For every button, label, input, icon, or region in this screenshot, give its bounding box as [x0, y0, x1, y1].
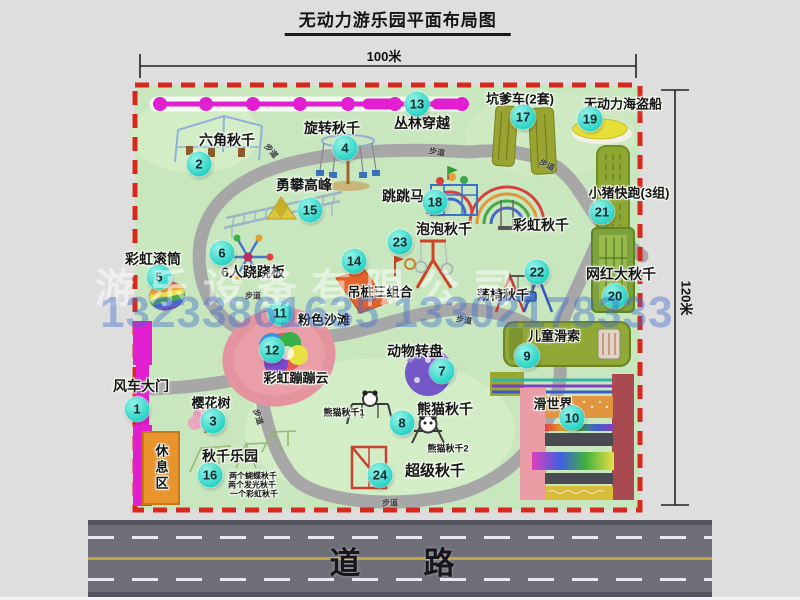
- map-sublabel-6: 休息区: [152, 444, 171, 492]
- facility-label-8: 熊猫秋千: [417, 399, 473, 419]
- facility-badge-13: 13: [405, 92, 430, 117]
- facility-badge-24: 24: [368, 463, 393, 488]
- map-sublabel-5: 一个彩虹秋千: [230, 489, 278, 500]
- facility-label-13: 丛林穿越: [394, 113, 450, 133]
- facility-label-2: 六角秋千: [199, 130, 255, 150]
- walkway-label-4: 步道: [455, 313, 473, 327]
- facility-badge-10: 10: [560, 406, 585, 431]
- walkway-label-0: 步道: [262, 141, 281, 160]
- walkway-label-5: 步道: [250, 408, 265, 427]
- facility-label-23: 泡泡秋千: [416, 219, 472, 239]
- facility-label-7: 动物转盘: [387, 341, 443, 361]
- facility-badge-11: 11: [268, 301, 293, 326]
- facility-badge-15: 15: [298, 198, 323, 223]
- facility-label-18: 跳跳马: [382, 186, 424, 206]
- facility-badge-7: 7: [430, 359, 455, 384]
- facility-label-9: 儿童滑索: [528, 326, 580, 345]
- facility-badge-5: 5: [147, 265, 172, 290]
- facility-badge-9: 9: [515, 344, 540, 369]
- facility-badge-3: 3: [201, 409, 226, 434]
- facility-label-15: 勇攀高峰: [276, 175, 332, 195]
- facility-badge-8: 8: [390, 411, 415, 436]
- facility-badge-2: 2: [187, 152, 212, 177]
- facility-badge-14: 14: [342, 249, 367, 274]
- facility-badge-12: 12: [260, 338, 285, 363]
- facility-badge-17: 17: [511, 105, 536, 130]
- walkway-label-2: 步道: [537, 156, 556, 173]
- map-sublabel-1: 熊猫秋千1: [323, 406, 364, 419]
- facility-badge-23: 23: [388, 230, 413, 255]
- facility-label-1: 风车大门: [113, 376, 169, 396]
- facility-label-11: 粉色沙滩: [298, 310, 350, 329]
- facility-label-22: 荡椅秋千: [477, 285, 529, 304]
- facility-label-12: 彩虹蹦蹦云: [263, 368, 328, 387]
- facility-badge-6: 6: [210, 241, 235, 266]
- facility-label-20: 网红大秋千: [586, 264, 656, 284]
- facility-label-6: 6人跷跷板: [221, 262, 285, 282]
- facility-badge-1: 1: [125, 397, 150, 422]
- facility-badge-19: 19: [578, 107, 603, 132]
- facility-badge-22: 22: [525, 260, 550, 285]
- facility-label-24: 超级秋千: [405, 460, 465, 481]
- map-sublabel-0: 彩虹秋千: [513, 215, 569, 235]
- walkway-label-3: 步道: [245, 291, 261, 302]
- screenshot-stage: 无动力游乐园平面布局图 100米 120米: [0, 0, 800, 600]
- walkway-label-6: 步道: [382, 498, 398, 509]
- facility-badge-4: 4: [333, 136, 358, 161]
- facility-label-14: 吊桩三组合: [347, 282, 412, 301]
- facility-label-4: 旋转秋千: [304, 118, 360, 138]
- facility-badge-20: 20: [603, 284, 628, 309]
- label-overlay: 风车大门1六角秋千2樱花树3旋转秋千4彩虹滚筒56人跷跷板6动物转盘7熊猫秋千8…: [0, 0, 800, 600]
- facility-badge-16: 16: [198, 463, 223, 488]
- facility-badge-21: 21: [590, 200, 615, 225]
- facility-badge-18: 18: [423, 190, 448, 215]
- walkway-label-1: 步道: [428, 145, 446, 159]
- map-sublabel-2: 熊猫秋千2: [427, 442, 468, 455]
